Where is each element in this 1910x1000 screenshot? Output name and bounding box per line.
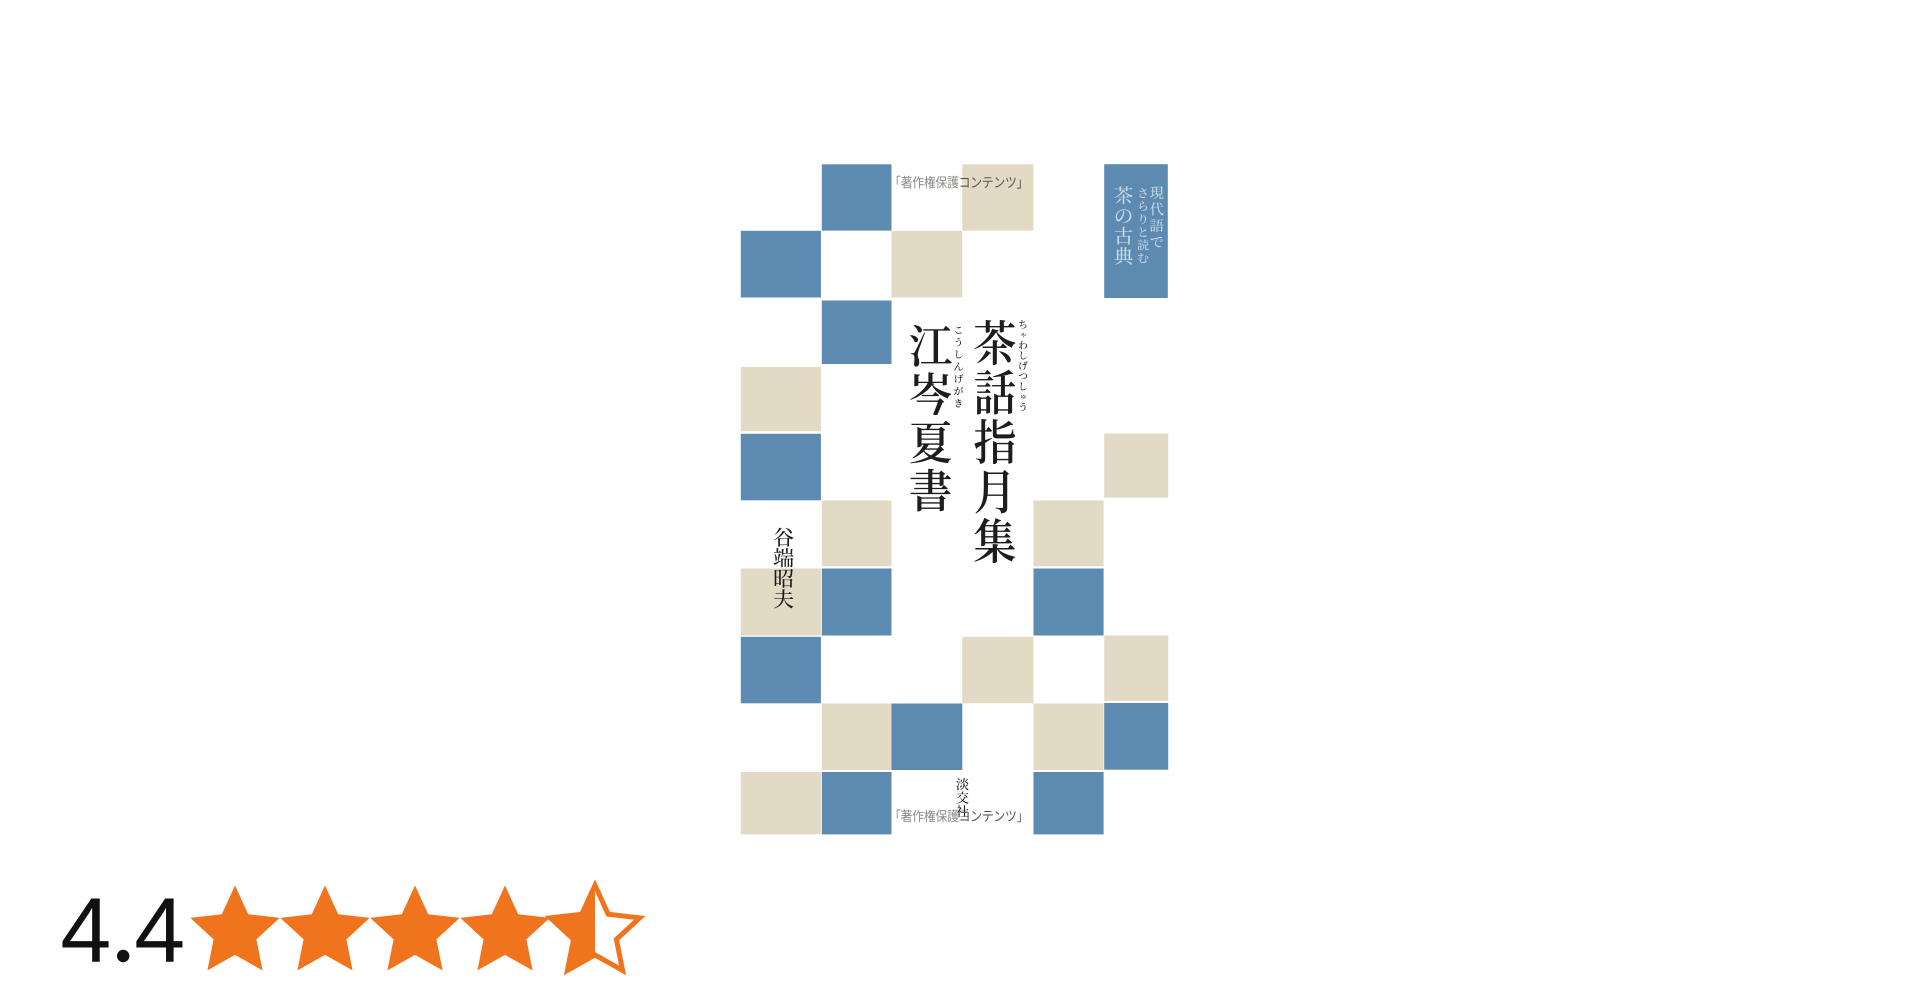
svg-text:4: 4 [134, 880, 185, 982]
svg-text:4: 4 [60, 880, 111, 982]
